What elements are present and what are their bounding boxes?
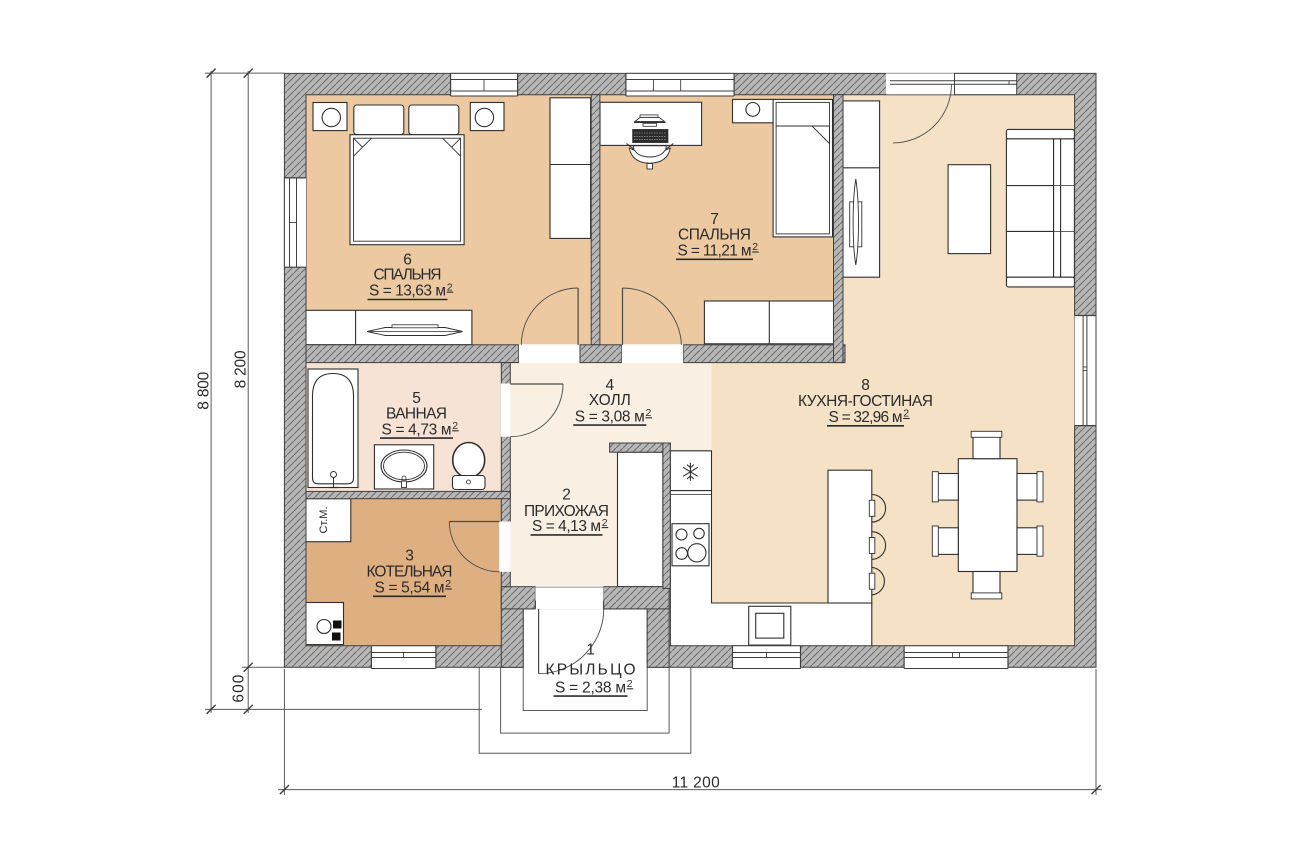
svg-text:2: 2 xyxy=(602,517,608,529)
svg-text:Ст.М.: Ст.М. xyxy=(318,506,330,533)
svg-text:КУХНЯ-ГОСТИНАЯ: КУХНЯ-ГОСТИНАЯ xyxy=(798,393,933,410)
svg-text:S = 13,63 м: S = 13,63 м xyxy=(369,283,446,300)
svg-text:8 800: 8 800 xyxy=(196,371,213,409)
svg-text:11 200: 11 200 xyxy=(672,775,720,792)
svg-text:2: 2 xyxy=(752,241,758,253)
svg-text:СПАЛЬНЯ: СПАЛЬНЯ xyxy=(678,227,751,244)
svg-text:3: 3 xyxy=(405,548,414,565)
svg-text:S = 4,73 м: S = 4,73 м xyxy=(382,421,452,438)
svg-text:S = 4,13 м: S = 4,13 м xyxy=(532,518,601,535)
svg-text:8 200: 8 200 xyxy=(233,350,250,388)
svg-text:7: 7 xyxy=(710,211,719,228)
svg-text:8: 8 xyxy=(861,377,870,394)
svg-text:ХОЛЛ: ХОЛЛ xyxy=(589,392,631,409)
svg-text:2: 2 xyxy=(903,408,909,420)
svg-text:S = 5,54 м: S = 5,54 м xyxy=(375,580,445,597)
svg-text:2: 2 xyxy=(452,420,458,432)
svg-text:2: 2 xyxy=(445,578,451,590)
svg-text:2: 2 xyxy=(627,678,633,690)
svg-text:2: 2 xyxy=(562,487,571,504)
svg-text:S = 2,38 м: S = 2,38 м xyxy=(555,679,626,696)
svg-text:1: 1 xyxy=(586,641,595,658)
svg-text:S = 3,08 м: S = 3,08 м xyxy=(575,408,645,425)
svg-text:ВАННАЯ: ВАННАЯ xyxy=(386,405,447,422)
svg-text:600: 600 xyxy=(231,674,248,702)
svg-text:2: 2 xyxy=(646,407,652,419)
svg-text:S = 11,21 м: S = 11,21 м xyxy=(678,243,752,260)
svg-text:S = 32,96 м: S = 32,96 м xyxy=(829,409,903,426)
svg-text:СПАЛЬНЯ: СПАЛЬНЯ xyxy=(374,267,442,284)
svg-text:КОТЕЛЬНАЯ: КОТЕЛЬНАЯ xyxy=(367,564,453,581)
svg-text:2: 2 xyxy=(447,281,453,293)
